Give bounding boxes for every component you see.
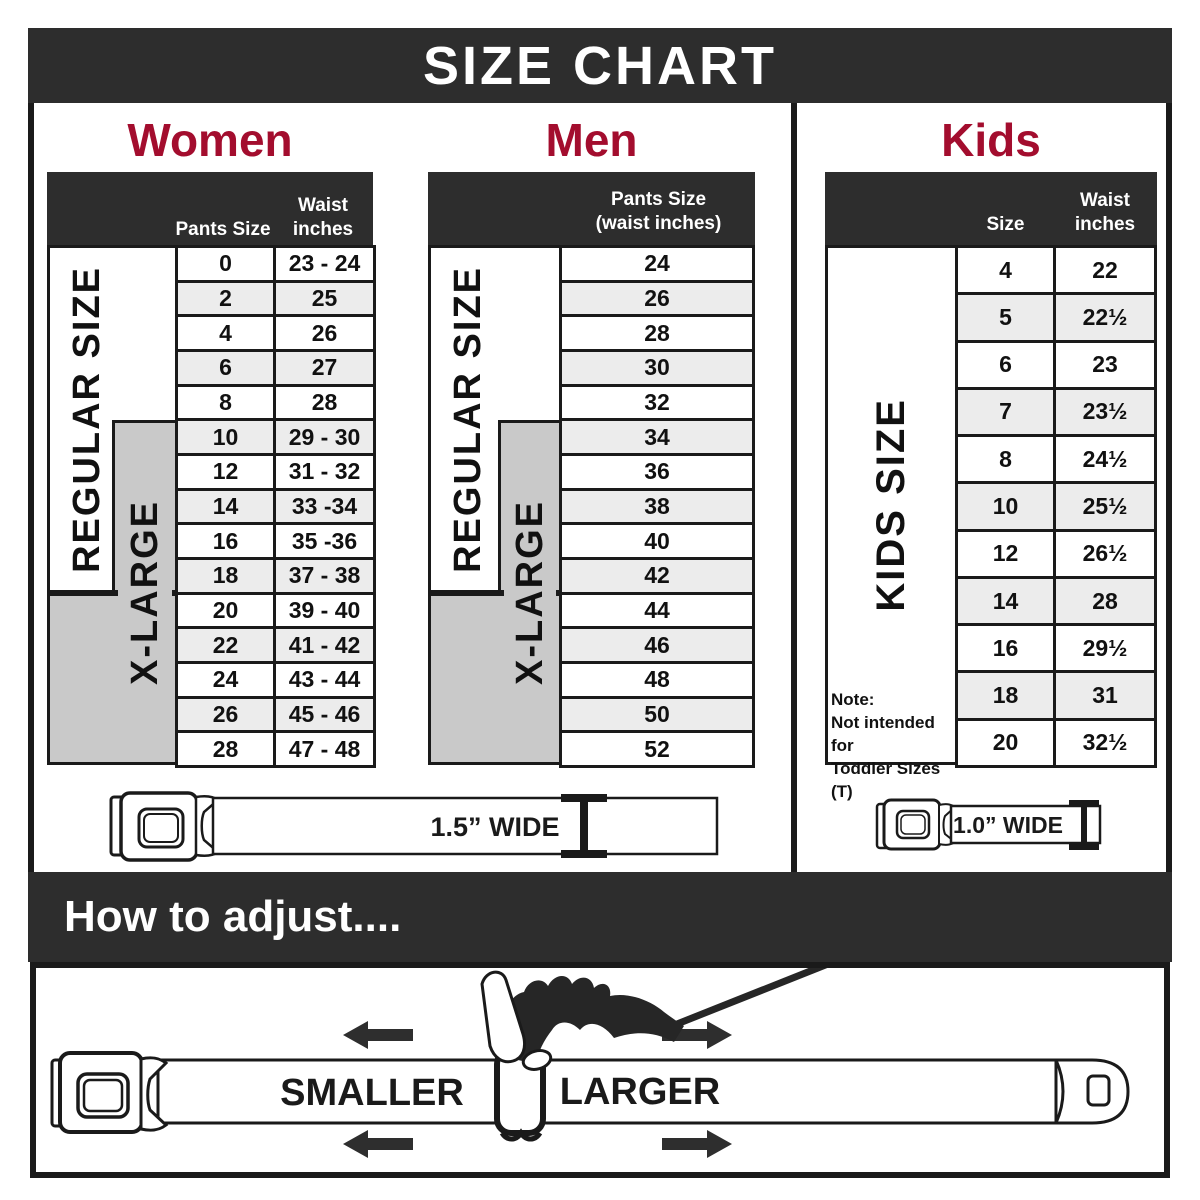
table-cell: 14 <box>178 491 273 523</box>
table-cell: 43 - 44 <box>276 664 373 696</box>
table-cell: 37 - 38 <box>276 560 373 592</box>
arrow-right-icon <box>662 1130 732 1158</box>
table-cell: 10 <box>958 484 1053 528</box>
how-to-adjust-heading: How to adjust.... <box>28 892 401 942</box>
smaller-label: SMALLER <box>280 1072 464 1114</box>
how-to-adjust-bar: How to adjust.... <box>28 872 1172 962</box>
table-cell: 42 <box>562 560 752 592</box>
adult-belt-width-label: 1.5” WIDE <box>430 812 559 842</box>
table-cell: 26 <box>276 317 373 349</box>
buckle-button-inner-icon <box>901 815 925 834</box>
table-cell: 27 <box>276 352 373 384</box>
men-rows: 24 26 28 30 32 34 36 38 40 42 44 46 48 5… <box>559 245 755 768</box>
table-cell: 5 <box>958 295 1053 339</box>
table-cell: 12 <box>178 456 273 488</box>
table-cell: 6 <box>178 352 273 384</box>
kids-belt-width-label: 1.0” WIDE <box>953 812 1063 838</box>
kids-col-header-size: Size <box>958 213 1053 237</box>
belt-tip-hole-icon <box>1088 1076 1109 1105</box>
table-cell: 6 <box>958 343 1053 387</box>
table-cell: 25 <box>276 283 373 315</box>
women-table-header: Pants Size Waist inches <box>47 172 373 248</box>
table-cell: 16 <box>958 626 1053 670</box>
table-cell: 10 <box>178 421 273 453</box>
table-cell: 29½ <box>1056 626 1154 670</box>
buckle-button-inner-icon <box>144 814 178 842</box>
table-cell: 22 <box>178 629 273 661</box>
kids-table-header: Size Waist inches <box>825 172 1157 245</box>
adjust-illustration-panel: SMALLER LARGER <box>30 962 1170 1178</box>
table-cell: 30 <box>562 352 752 384</box>
adult-belt-illustration: 1.5” WIDE <box>47 785 727 870</box>
table-cell: 28 <box>562 317 752 349</box>
table-cell: 4 <box>178 317 273 349</box>
table-cell: 47 - 48 <box>276 733 373 765</box>
men-col-header-line2: (waist inches) <box>596 213 722 234</box>
table-cell: 26 <box>178 699 273 731</box>
table-cell: 33 -34 <box>276 491 373 523</box>
women-col-header-waist-line1: Waist <box>298 195 348 216</box>
kids-col-header-waist-line2: inches <box>1075 214 1135 235</box>
table-cell: 23 <box>1056 343 1154 387</box>
table-cell: 44 <box>562 595 752 627</box>
table-cell: 46 <box>562 629 752 661</box>
kids-col-header-waist-line1: Waist <box>1080 190 1130 211</box>
table-cell: 26½ <box>1056 532 1154 576</box>
table-cell: 4 <box>958 248 1053 292</box>
table-cell: 12 <box>958 532 1053 576</box>
women-col-header-waist-line2: inches <box>293 219 353 240</box>
kids-section-heading: Kids <box>825 112 1157 168</box>
table-cell: 48 <box>562 664 752 696</box>
table-cell: 31 - 32 <box>276 456 373 488</box>
men-section-heading: Men <box>428 112 755 168</box>
table-cell: 2 <box>178 283 273 315</box>
women-section-heading: Women <box>47 112 373 168</box>
kids-note-line2: Not intended for <box>831 711 955 757</box>
kids-size-box: KIDS SIZE <box>825 245 958 765</box>
table-cell: 14 <box>958 579 1053 623</box>
kids-note-line1: Note: <box>831 688 955 711</box>
table-cell: 20 <box>958 721 1053 765</box>
size-chart-page: SIZE CHART Women Men Kids Pants Size Wai… <box>0 0 1200 1200</box>
table-cell: 41 - 42 <box>276 629 373 661</box>
table-cell: 20 <box>178 595 273 627</box>
men-col-header-line1: Pants Size <box>611 189 706 210</box>
buckle-button-inner-icon <box>84 1080 122 1111</box>
kids-rows: 422 522½ 623 723½ 824½ 1025½ 1226½ 1428 … <box>955 245 1157 768</box>
table-cell: 22 <box>1056 248 1154 292</box>
table-cell: 18 <box>178 560 273 592</box>
table-cell: 23 - 24 <box>276 248 373 280</box>
table-cell: 24½ <box>1056 437 1154 481</box>
kids-size-label: KIDS SIZE <box>869 398 914 612</box>
table-cell: 24 <box>562 248 752 280</box>
table-cell: 16 <box>178 525 273 557</box>
table-cell: 25½ <box>1056 484 1154 528</box>
table-cell: 31 <box>1056 673 1154 717</box>
loose-strap-end <box>672 968 838 1026</box>
women-regular-size-label: REGULAR SIZE <box>66 266 109 573</box>
table-cell: 7 <box>958 390 1053 434</box>
men-table-header: Pants Size (waist inches) <box>428 172 755 248</box>
table-cell: 32 <box>562 387 752 419</box>
women-xlarge-label: X-LARGE <box>124 500 167 685</box>
table-cell: 28 <box>178 733 273 765</box>
table-cell: 22½ <box>1056 295 1154 339</box>
table-cell: 26 <box>562 283 752 315</box>
table-cell: 50 <box>562 699 752 731</box>
table-cell: 0 <box>178 248 273 280</box>
men-xlarge-label: X-LARGE <box>509 500 552 685</box>
table-cell: 32½ <box>1056 721 1154 765</box>
larger-label: LARGER <box>560 1071 720 1113</box>
title-bar: SIZE CHART <box>28 28 1172 103</box>
table-cell: 35 -36 <box>276 525 373 557</box>
arrow-left-icon <box>343 1021 413 1049</box>
table-cell: 39 - 40 <box>276 595 373 627</box>
table-cell: 34 <box>562 421 752 453</box>
page-title: SIZE CHART <box>423 35 777 97</box>
table-cell: 8 <box>178 387 273 419</box>
table-cell: 23½ <box>1056 390 1154 434</box>
table-cell: 38 <box>562 491 752 523</box>
table-cell: 52 <box>562 733 752 765</box>
table-cell: 28 <box>1056 579 1154 623</box>
table-cell: 18 <box>958 673 1053 717</box>
adjust-illustration: SMALLER LARGER <box>36 968 1164 1172</box>
women-rows: 023 - 24 225 426 627 828 1029 - 30 1231 … <box>175 245 376 768</box>
panel-divider <box>791 103 797 872</box>
kids-belt-illustration: 1.0” WIDE <box>825 785 1157 870</box>
table-cell: 28 <box>276 387 373 419</box>
women-col-header-pants: Pants Size <box>168 218 278 242</box>
table-cell: 36 <box>562 456 752 488</box>
table-cell: 24 <box>178 664 273 696</box>
table-cell: 45 - 46 <box>276 699 373 731</box>
table-cell: 29 - 30 <box>276 421 373 453</box>
arrow-left-icon <box>343 1130 413 1158</box>
men-regular-size-label: REGULAR SIZE <box>447 266 490 573</box>
table-cell: 40 <box>562 525 752 557</box>
table-cell: 8 <box>958 437 1053 481</box>
hand-icon <box>482 972 684 1072</box>
